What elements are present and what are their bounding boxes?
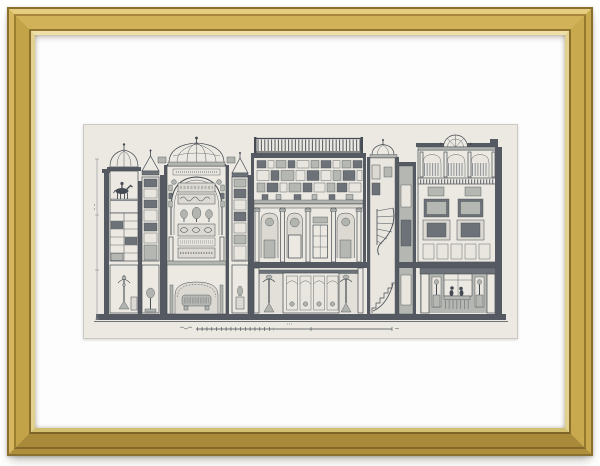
left-wing [102, 143, 164, 314]
frame-main-band [16, 16, 584, 447]
lunette-window [439, 135, 471, 147]
turret-bay [232, 152, 254, 314]
spiral-staircase-shaft [367, 139, 399, 314]
central-domed-pavilion [158, 137, 235, 314]
frame-groove [14, 14, 586, 449]
spired-tower [142, 150, 159, 314]
picture-frame [7, 7, 593, 456]
mat-board [35, 35, 565, 428]
stair-lantern-dome [370, 139, 397, 158]
frame-inner-lip [31, 31, 569, 432]
candelabrum-room [110, 265, 138, 313]
framed-print-photo [0, 0, 600, 466]
striped-arcade [420, 152, 495, 177]
engraving-print [83, 124, 518, 339]
colonnade-floor [254, 204, 363, 262]
roof-skylight-railing [254, 137, 363, 153]
left-turret-dome [107, 143, 141, 171]
engraving-artwork [84, 125, 517, 338]
equestrian-statue [110, 171, 138, 213]
central-dome [158, 137, 235, 166]
parlour-with-figures [420, 268, 496, 313]
frame-inner-groove [29, 29, 571, 434]
scale-bar [180, 324, 399, 331]
ground-bookcase-room [254, 268, 363, 313]
wainscot-panels [423, 244, 490, 259]
bookcase-grid [110, 213, 138, 261]
crypt-sarcophagus [170, 282, 223, 314]
hung-pictures-wall [254, 158, 363, 204]
ground-line [94, 314, 508, 322]
frame-outer-band [9, 9, 591, 454]
narrow-bay [399, 162, 416, 314]
dimension-line [94, 159, 99, 319]
